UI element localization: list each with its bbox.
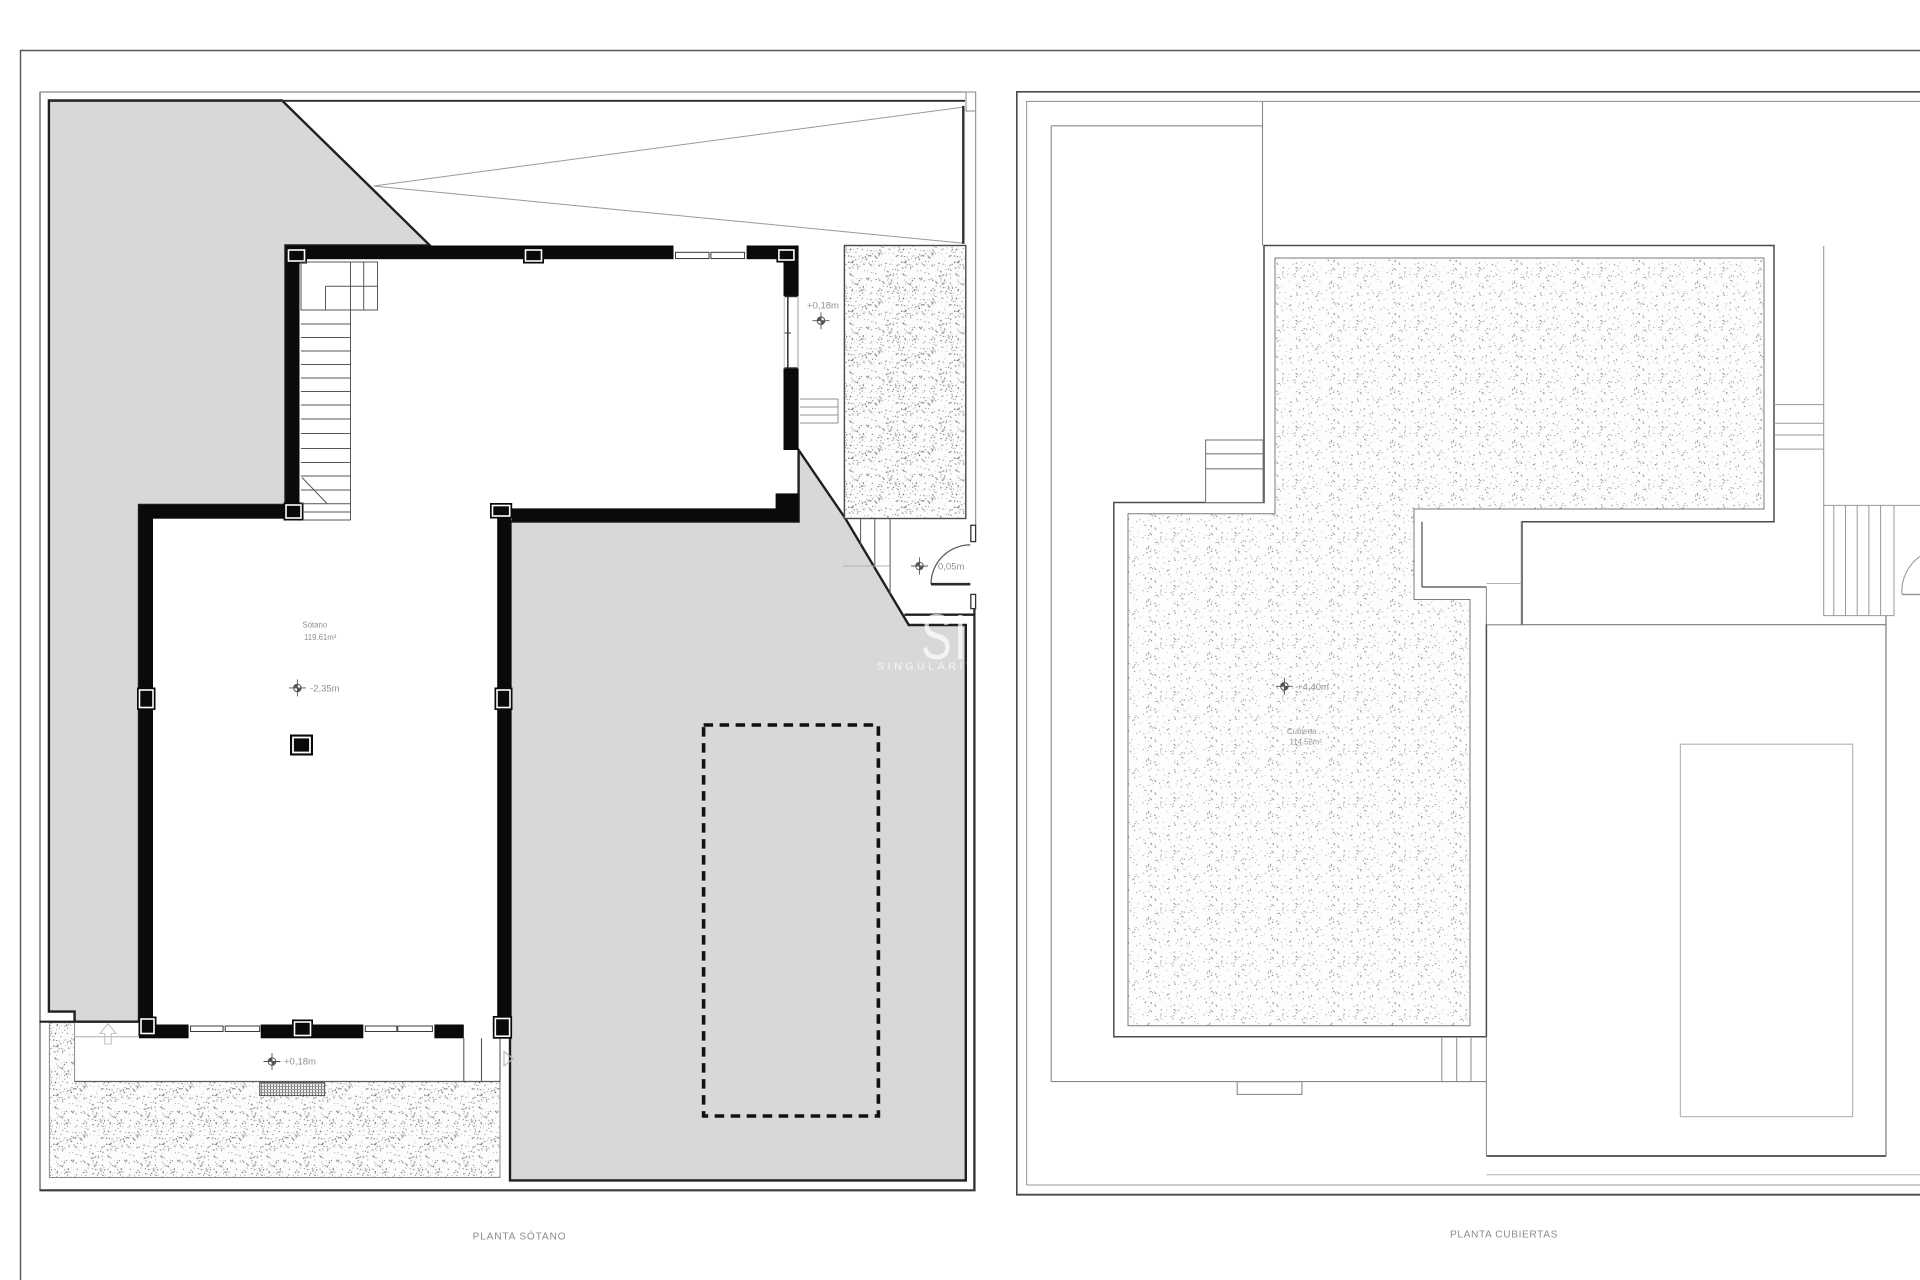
svg-text:-2,35m: -2,35m xyxy=(310,684,340,695)
svg-text:+0,18m: +0,18m xyxy=(807,301,839,312)
svg-text:Sótano: Sótano xyxy=(303,621,328,630)
svg-text:PLANTA CUBIERTAS: PLANTA CUBIERTAS xyxy=(1450,1230,1558,1241)
svg-text:PLANTA SÓTANO: PLANTA SÓTANO xyxy=(473,1230,567,1243)
svg-text:+0,18m: +0,18m xyxy=(284,1057,316,1068)
svg-text:0,05m: 0,05m xyxy=(938,562,964,573)
svg-text:+4,40m: +4,40m xyxy=(1297,682,1329,693)
svg-text:Cubierta: Cubierta xyxy=(1287,727,1317,736)
svg-text:SINGULARIT: SINGULARIT xyxy=(877,661,976,673)
svg-text:114.52m²: 114.52m² xyxy=(1290,738,1323,747)
svg-text:119.61m²: 119.61m² xyxy=(304,633,337,642)
